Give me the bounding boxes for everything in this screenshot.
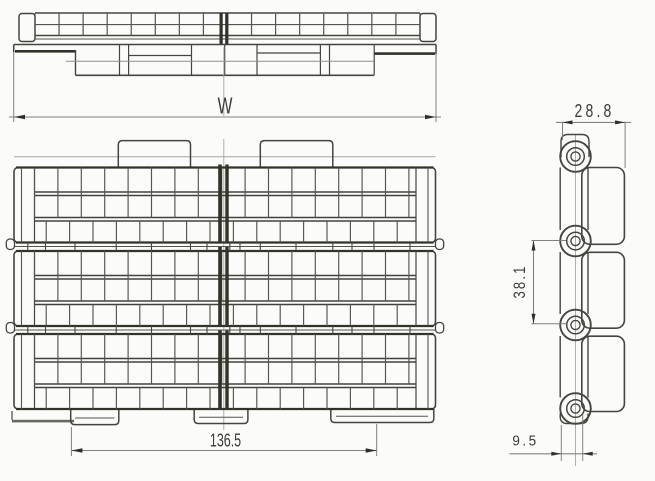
svg-text:136.5: 136.5 bbox=[210, 431, 241, 451]
svg-text:28.8: 28.8 bbox=[574, 100, 614, 122]
svg-text:9.5: 9.5 bbox=[512, 433, 538, 450]
svg-text:W: W bbox=[218, 94, 233, 120]
svg-text:38.1: 38.1 bbox=[512, 264, 530, 298]
